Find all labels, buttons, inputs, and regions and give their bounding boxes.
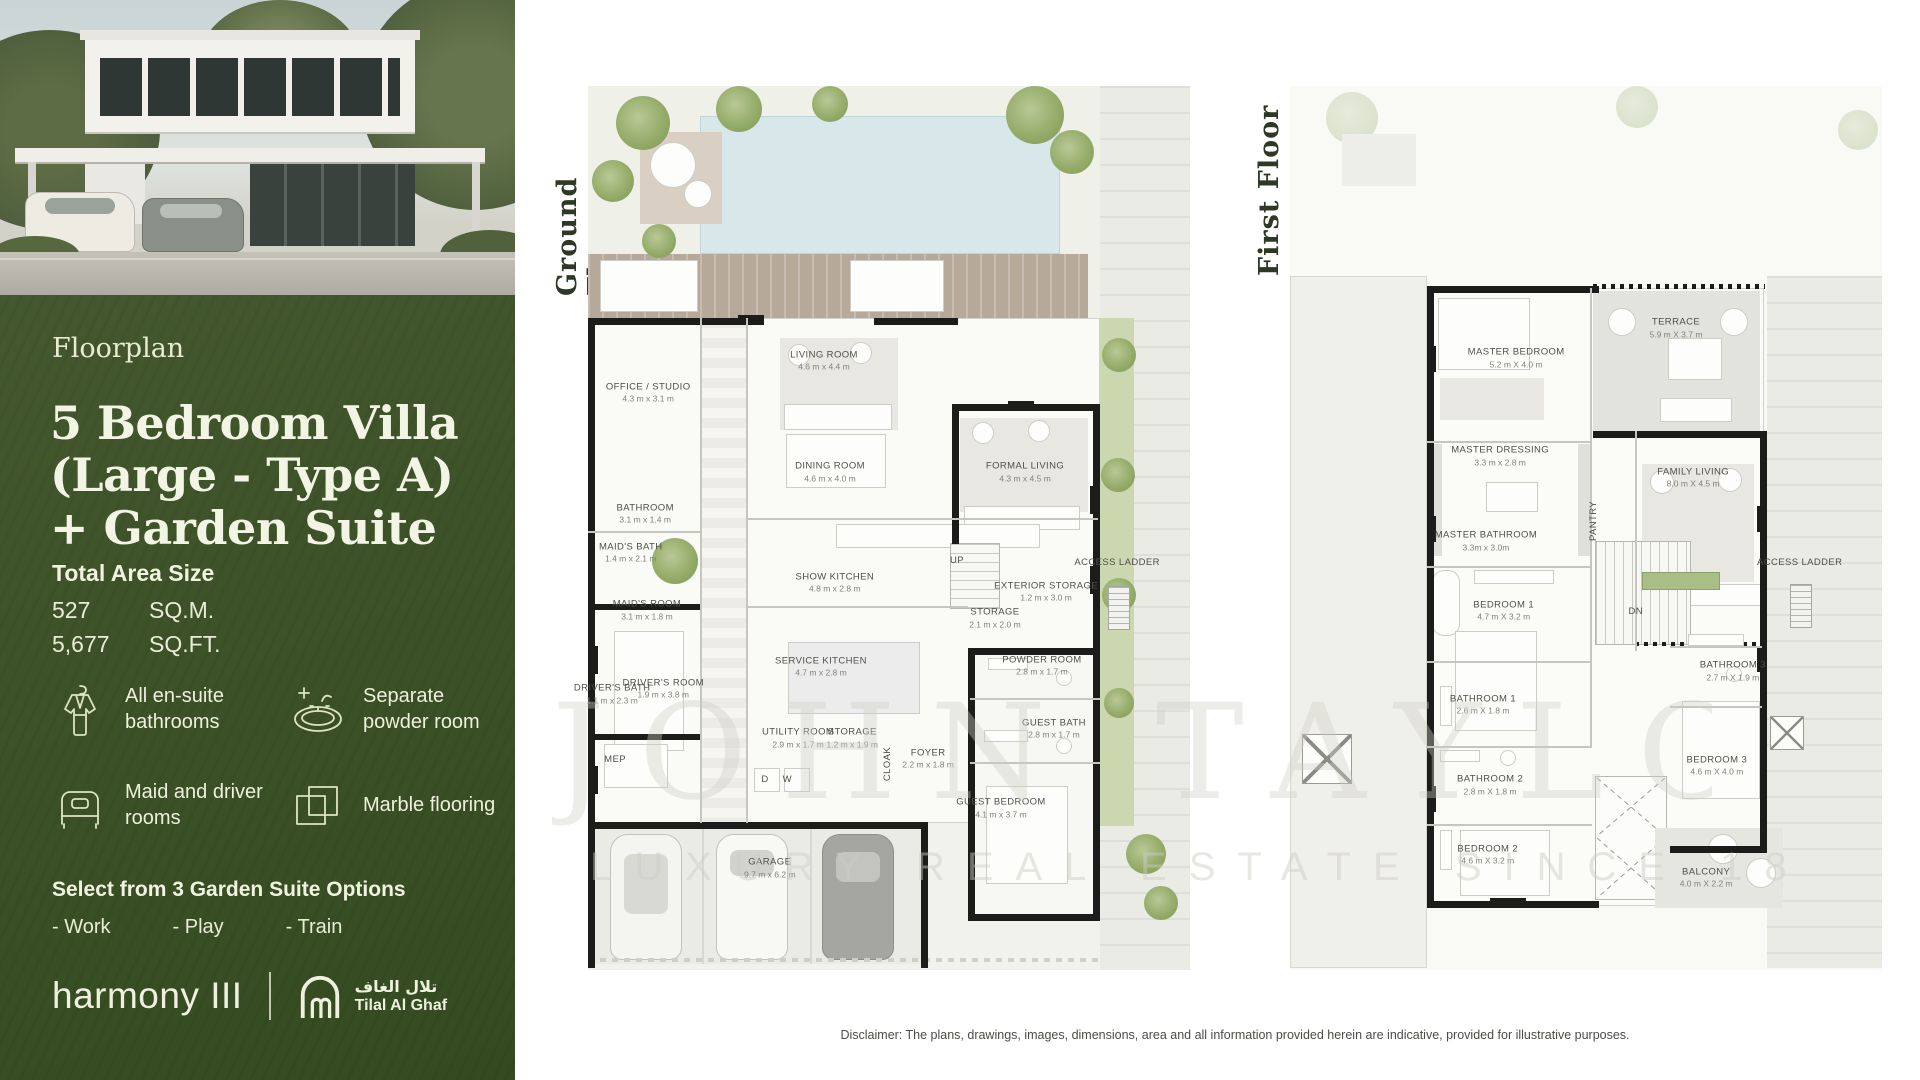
title-line-1: 5 Bedroom Villa xyxy=(50,397,458,449)
title-line-2: (Large - Type A) xyxy=(50,449,458,501)
feature-powder-room: Separate powder room xyxy=(290,682,510,738)
area-unit-sqft: SQ.FT. xyxy=(149,631,221,658)
suite-option-train: - Train xyxy=(286,916,343,939)
suite-option-play: - Play xyxy=(173,916,224,939)
total-area-heading: Total Area Size xyxy=(52,560,221,587)
ground-floor-plan: OFFICE / STUDIO4.3 m x 3.1 mLIVING ROOM4… xyxy=(588,86,1190,970)
first-floor-annotations: PANTRYDN xyxy=(1290,86,1882,970)
feature-maid-driver: Maid and driver rooms xyxy=(52,778,290,834)
area-unit-sqm: SQ.M. xyxy=(149,597,214,624)
plan-annotation-dn: DN xyxy=(1628,606,1643,618)
harmony-wordmark: harmony III xyxy=(52,975,243,1017)
tilal-al-ghaf-logo: تلال الغاف Tilal Al Ghaf xyxy=(297,972,447,1020)
first-floor-label: First Floor xyxy=(1254,96,1285,276)
marble-tiles-icon xyxy=(290,778,346,834)
villa-upper-windows xyxy=(100,58,400,116)
first-floor-plan: MASTER BEDROOM5.2 m X 4.0 mTERRACE5.9 m … xyxy=(1290,86,1882,970)
sink-icon xyxy=(290,682,346,738)
suite-option-work: - Work xyxy=(52,916,111,939)
feature-label: Marble flooring xyxy=(363,793,495,819)
title-line-3: + Garden Suite xyxy=(50,502,458,554)
total-area-block: Total Area Size 527 SQ.M. 5,677 SQ.FT. xyxy=(52,560,221,665)
features-grid: All en-suite bathrooms Separate powder r… xyxy=(52,682,510,834)
bed-icon xyxy=(52,778,108,834)
plan-annotation-cloak: CLOAK xyxy=(882,747,894,781)
panel-eyebrow: Floorplan xyxy=(52,333,184,364)
page-title: 5 Bedroom Villa (Large - Type A) + Garde… xyxy=(50,397,458,554)
garden-suite-block: Select from 3 Garden Suite Options - Wor… xyxy=(52,878,406,939)
area-row-sqm: 527 SQ.M. xyxy=(52,597,221,624)
feature-ensuite: All en-suite bathrooms xyxy=(52,682,290,738)
feature-label: All en-suite bathrooms xyxy=(125,684,290,735)
area-value-sqm: 527 xyxy=(52,597,149,624)
brand-divider xyxy=(269,972,271,1020)
villa-canopy xyxy=(15,148,485,162)
arch-icon xyxy=(297,972,343,1020)
area-value-sqft: 5,677 xyxy=(52,631,149,658)
disclaimer-text: Disclaimer: The plans, drawings, images,… xyxy=(588,1028,1882,1042)
feature-label: Separate powder room xyxy=(363,684,510,735)
plan-annotation-d: D xyxy=(761,774,768,786)
info-panel: Floorplan 5 Bedroom Villa (Large - Type … xyxy=(0,0,515,1080)
area-row-sqft: 5,677 SQ.FT. xyxy=(52,631,221,658)
ground-floor-annotations: UPMEPCLOAKDW xyxy=(588,86,1190,970)
villa-glass-wall xyxy=(250,164,415,246)
garden-suite-heading: Select from 3 Garden Suite Options xyxy=(52,878,406,902)
villa-photo xyxy=(0,0,515,295)
plan-annotation-w: W xyxy=(783,774,792,786)
developer-name-latin: Tilal Al Ghaf xyxy=(355,996,447,1015)
bathrobe-icon xyxy=(52,682,108,738)
plan-annotation-pantry: PANTRY xyxy=(1588,501,1600,541)
villa-roof xyxy=(80,30,420,40)
brand-footer: harmony III تلال الغاف Tilal Al Ghaf xyxy=(52,972,447,1020)
feature-label: Maid and driver rooms xyxy=(125,780,290,831)
developer-name-arabic: تلال الغاف xyxy=(355,977,447,996)
plan-annotation-mep: MEP xyxy=(604,753,626,765)
feature-marble: Marble flooring xyxy=(290,778,510,834)
plan-annotation-up: UP xyxy=(950,555,964,567)
